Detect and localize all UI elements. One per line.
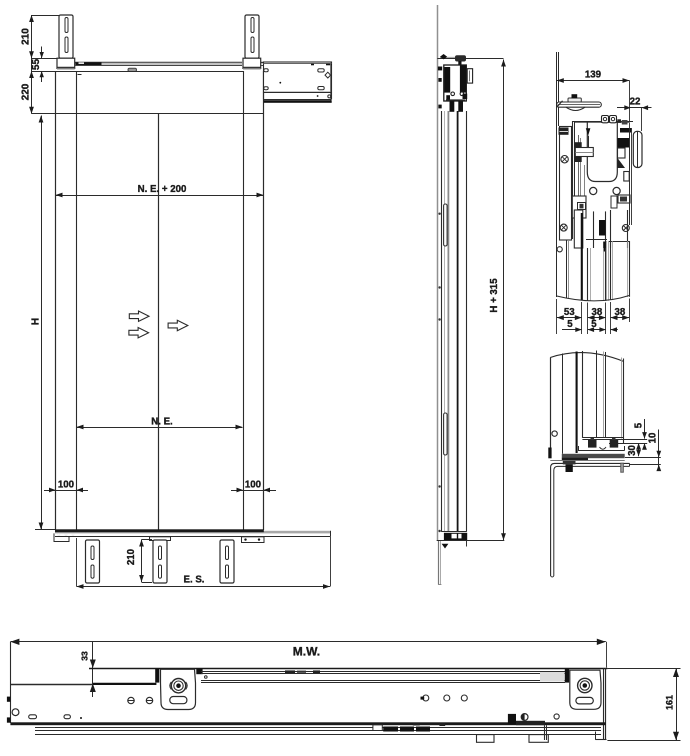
svg-text:161: 161	[664, 695, 674, 710]
svg-text:5: 5	[633, 422, 644, 428]
svg-text:30: 30	[627, 445, 638, 456]
svg-text:M.W.: M.W.	[293, 645, 320, 659]
svg-text:210: 210	[21, 28, 32, 45]
svg-text:22: 22	[630, 97, 641, 108]
svg-text:100: 100	[58, 480, 74, 491]
svg-text:10: 10	[648, 433, 659, 444]
svg-text:H + 315: H + 315	[489, 278, 500, 313]
svg-text:210: 210	[126, 549, 137, 565]
svg-text:55: 55	[31, 59, 42, 71]
svg-text:N. E. + 200: N. E. + 200	[138, 184, 187, 195]
svg-text:38: 38	[615, 307, 626, 318]
svg-text:100: 100	[245, 480, 261, 491]
svg-text:5: 5	[567, 319, 573, 330]
svg-text:220: 220	[21, 83, 32, 100]
svg-text:53: 53	[564, 307, 575, 318]
svg-text:N. E.: N. E.	[151, 417, 173, 428]
svg-text:E. S.: E. S.	[184, 575, 205, 586]
svg-text:5: 5	[591, 319, 597, 330]
svg-text:139: 139	[585, 70, 602, 81]
svg-text:33: 33	[79, 651, 89, 661]
svg-text:38: 38	[592, 307, 603, 318]
svg-text:H: H	[31, 318, 42, 325]
